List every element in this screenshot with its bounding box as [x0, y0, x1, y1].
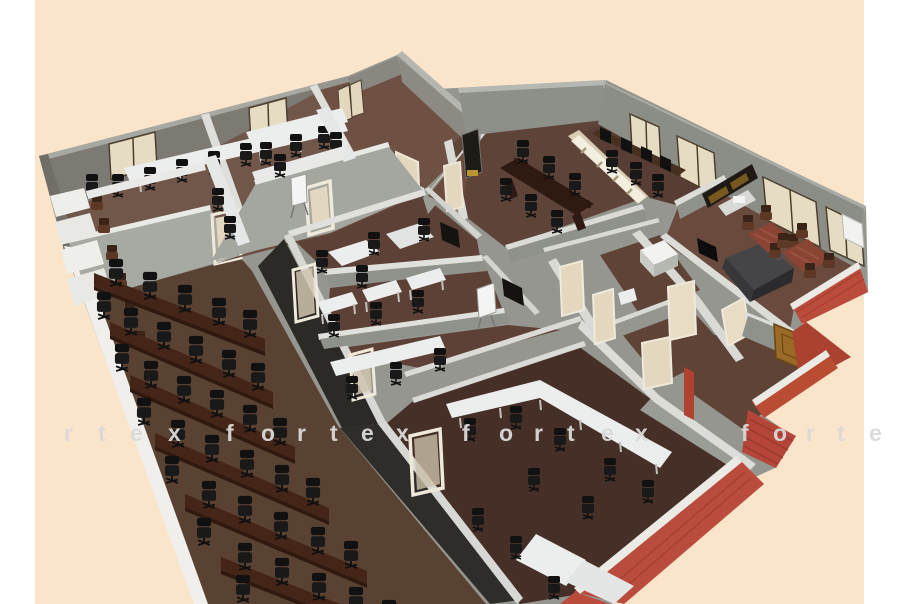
- svg-text:x: x: [635, 420, 648, 446]
- svg-text:e: e: [601, 420, 614, 446]
- svg-text:r: r: [534, 420, 543, 446]
- svg-text:x: x: [168, 420, 181, 446]
- svg-text:t: t: [330, 420, 338, 446]
- svg-text:r: r: [297, 420, 306, 446]
- svg-text:e: e: [130, 420, 143, 446]
- svg-text:t: t: [567, 420, 575, 446]
- svg-text:o: o: [261, 420, 275, 446]
- svg-text:e: e: [361, 420, 374, 446]
- svg-text:r: r: [806, 420, 815, 446]
- svg-text:f: f: [741, 420, 749, 446]
- svg-text:t: t: [98, 420, 106, 446]
- svg-text:r: r: [64, 420, 73, 446]
- svg-text:e: e: [869, 420, 882, 446]
- svg-text:o: o: [499, 420, 513, 446]
- svg-text:f: f: [462, 420, 470, 446]
- svg-text:x: x: [396, 420, 409, 446]
- svg-text:t: t: [837, 420, 845, 446]
- svg-text:o: o: [773, 420, 787, 446]
- svg-text:f: f: [226, 420, 234, 446]
